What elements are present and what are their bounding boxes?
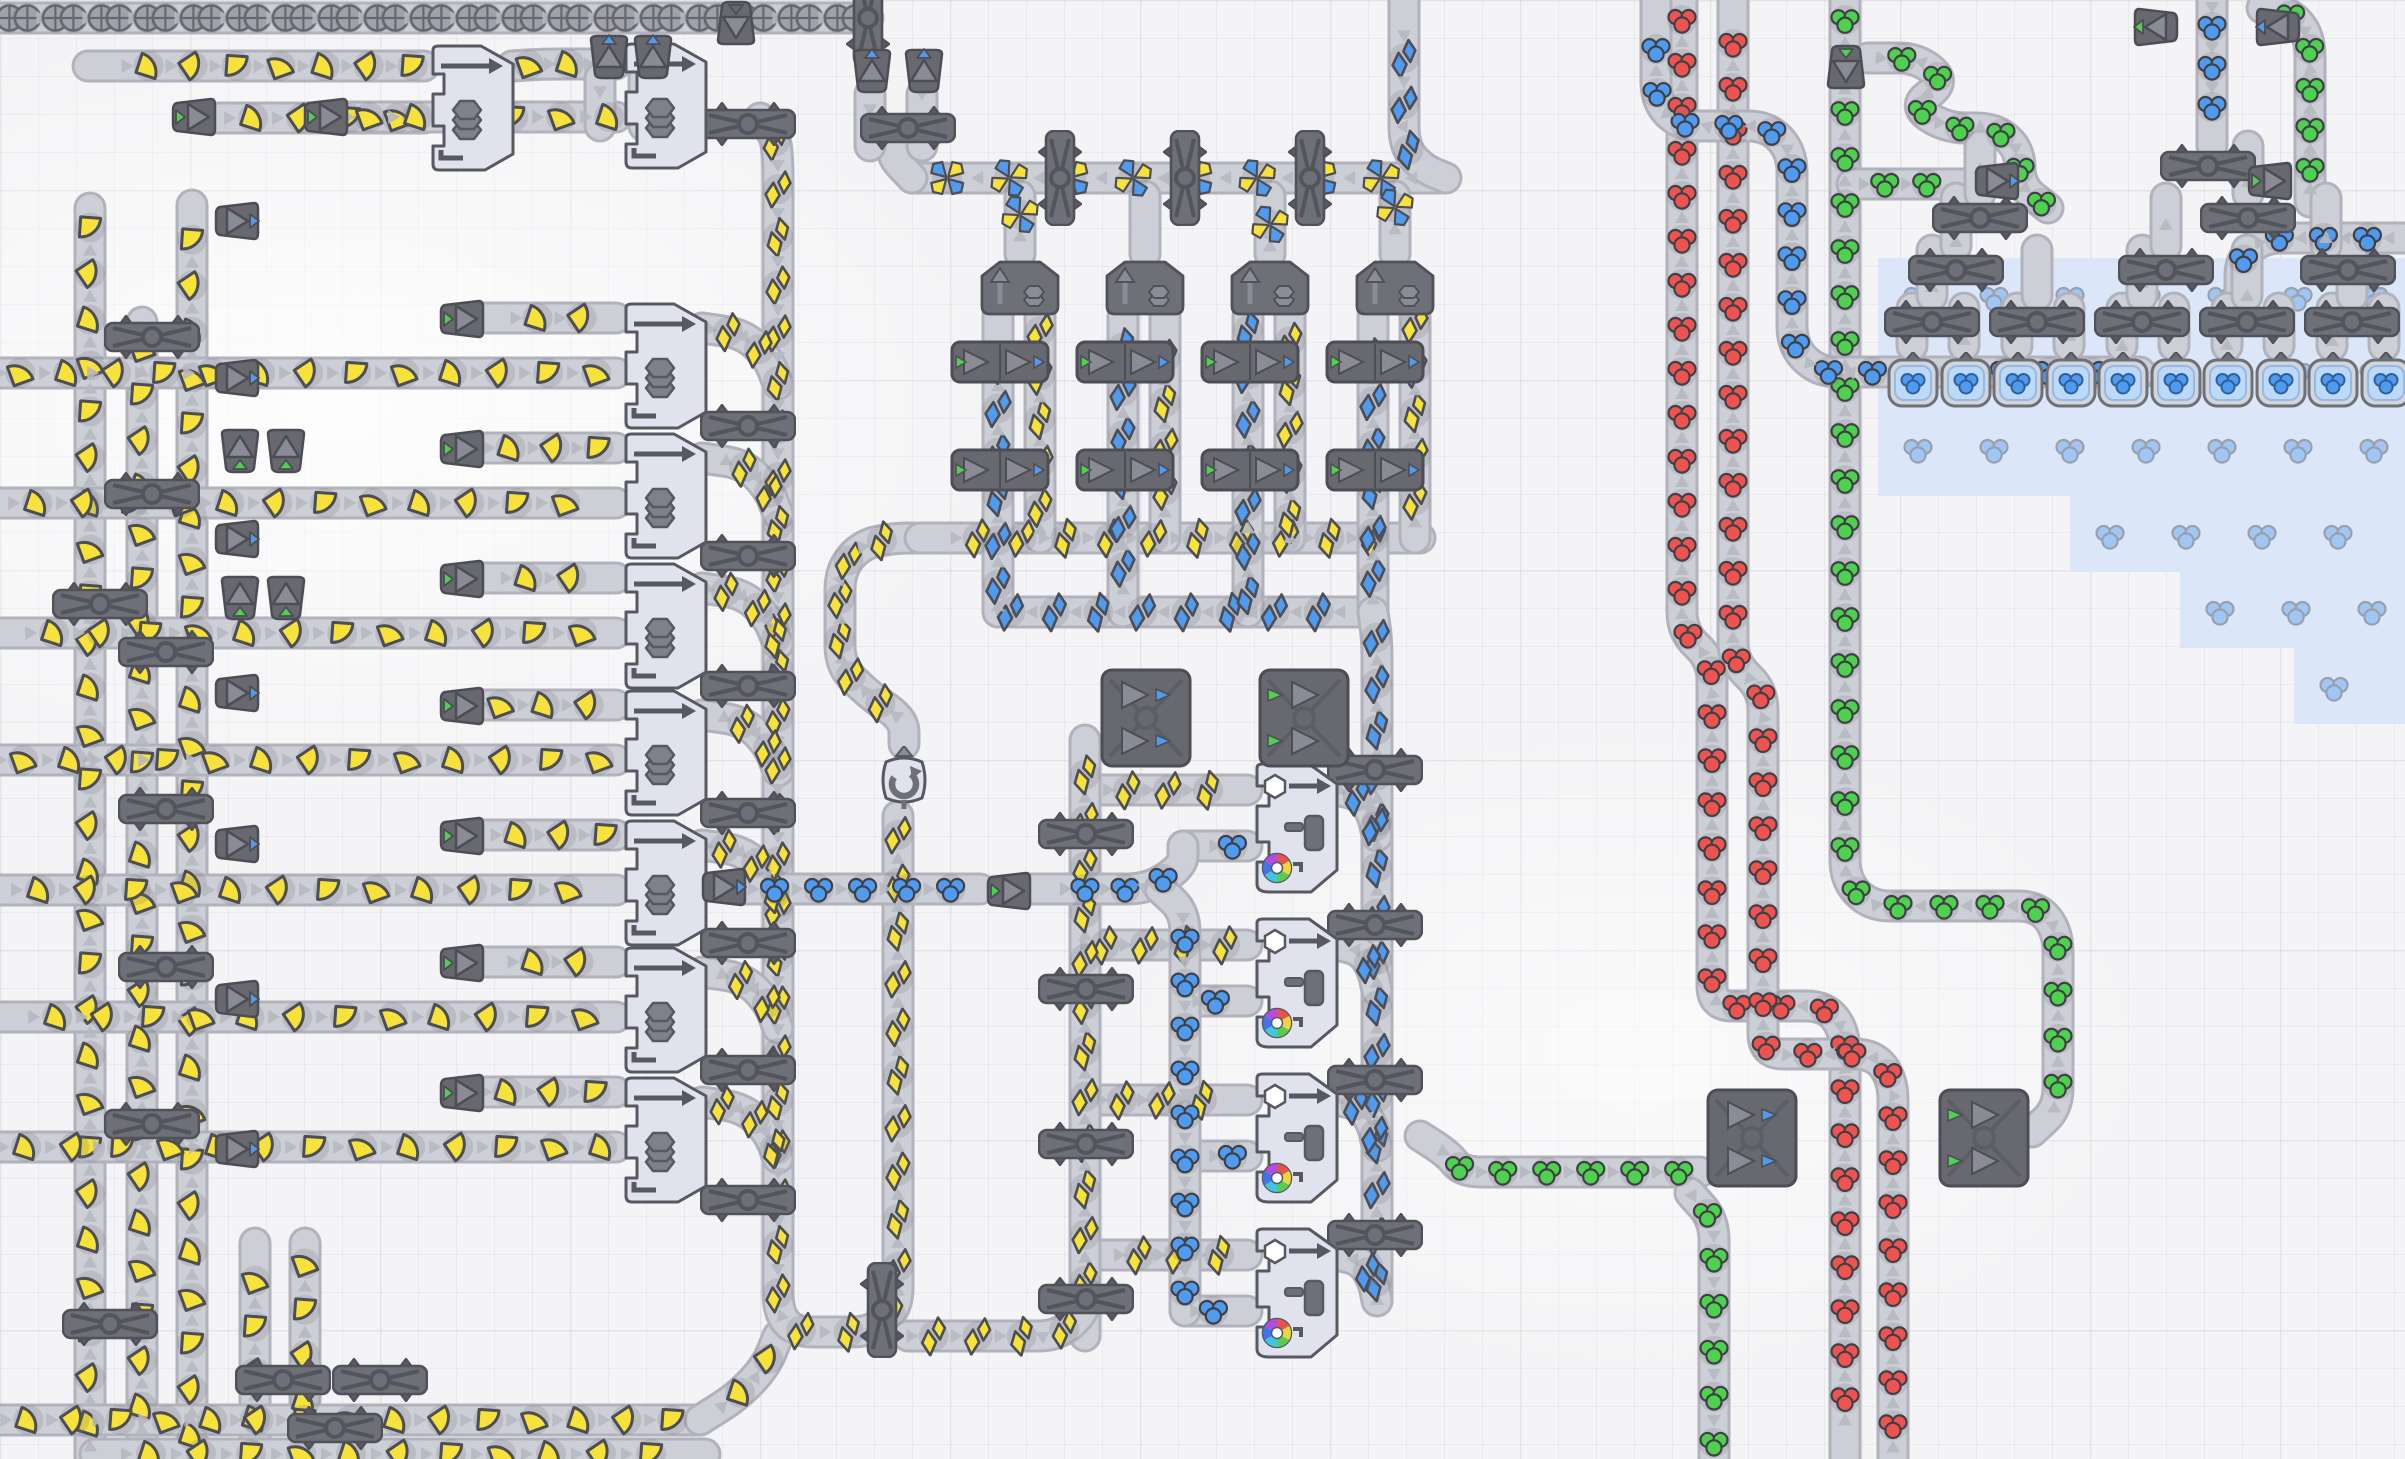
- machine-bal[interactable]: [2305, 301, 2399, 343]
- machine-paint[interactable]: [1257, 764, 1337, 892]
- shape-item-it_gray: [291, 6, 316, 31]
- machine-bal[interactable]: [1039, 1278, 1133, 1320]
- machine-cat[interactable]: [441, 688, 483, 724]
- machine-bal[interactable]: [119, 631, 213, 673]
- machine-bal[interactable]: [1909, 249, 2003, 291]
- machine-stk[interactable]: [626, 691, 706, 815]
- factory-canvas[interactable]: [0, 0, 2405, 1459]
- machine-stku[interactable]: [982, 262, 1058, 314]
- machine-bal[interactable]: [105, 316, 199, 358]
- machine-jump2[interactable]: [1327, 450, 1423, 490]
- machine-cat[interactable]: [441, 301, 483, 337]
- machine-cat[interactable]: [173, 99, 215, 135]
- machine-miner[interactable]: [2257, 352, 2305, 406]
- machine-lau[interactable]: [703, 869, 746, 905]
- machine-bal[interactable]: [2095, 301, 2189, 343]
- machine-lau[interactable]: [2256, 9, 2299, 45]
- machine-stk[interactable]: [626, 948, 706, 1072]
- machine-cat[interactable]: [1828, 46, 1864, 88]
- machine-miner[interactable]: [2152, 352, 2200, 406]
- machine-jv_r[interactable]: [1940, 1090, 2028, 1186]
- machine-bal[interactable]: [701, 103, 795, 145]
- machine-bal[interactable]: [1039, 1123, 1133, 1165]
- shape-item-it_gray: [659, 6, 684, 31]
- machine-lau[interactable]: [216, 521, 259, 557]
- shape-item-it_gray: [15, 6, 40, 31]
- machine-jump2[interactable]: [952, 450, 1048, 490]
- machine-rot[interactable]: [883, 746, 925, 809]
- machine-bal[interactable]: [53, 583, 147, 625]
- shape-item-it_gray: [475, 6, 500, 31]
- machine-lau[interactable]: [591, 35, 627, 78]
- machine-bal[interactable]: [701, 535, 795, 577]
- machine-cat[interactable]: [268, 430, 304, 472]
- machine-bal[interactable]: [861, 107, 955, 149]
- machine-miner[interactable]: [1994, 352, 2042, 406]
- machine-bal[interactable]: [2200, 301, 2294, 343]
- machine-lau[interactable]: [216, 1131, 259, 1167]
- shape-item-it_gray: [199, 6, 224, 31]
- shape-item-it_yq: [640, 1443, 661, 1459]
- machine-bal[interactable]: [861, 1263, 903, 1357]
- machine-cat[interactable]: [718, 2, 754, 44]
- machine-lau[interactable]: [216, 981, 259, 1017]
- machine-bal[interactable]: [701, 1179, 795, 1221]
- machine-paint[interactable]: [1257, 1074, 1337, 1202]
- machine-bal[interactable]: [119, 788, 213, 830]
- machine-jump2[interactable]: [1077, 450, 1173, 490]
- shape-item-it_gray: [797, 6, 822, 31]
- machine-cat[interactable]: [305, 99, 347, 135]
- shape-item-it_gray: [383, 6, 408, 31]
- machine-bal[interactable]: [2301, 249, 2395, 291]
- machine-miner[interactable]: [2047, 352, 2095, 406]
- machine-jv_s[interactable]: [1708, 1090, 1796, 1186]
- machine-bal[interactable]: [1885, 301, 1979, 343]
- machine-stk[interactable]: [626, 564, 706, 688]
- machine-jump2[interactable]: [952, 342, 1048, 382]
- machine-bal[interactable]: [2161, 145, 2255, 187]
- machine-cat[interactable]: [988, 873, 1030, 909]
- machine-bal[interactable]: [1164, 131, 1206, 225]
- machine-cat[interactable]: [2249, 163, 2291, 199]
- machine-miner[interactable]: [1889, 352, 1937, 406]
- shape-item-it_yq: [240, 1443, 261, 1459]
- machine-bal[interactable]: [1039, 813, 1133, 855]
- belt-layer[interactable]: [0, 0, 2405, 1459]
- machine-stku[interactable]: [1232, 262, 1308, 314]
- machine-bal[interactable]: [333, 1359, 427, 1401]
- machine-stk[interactable]: [626, 304, 706, 428]
- machine-cat[interactable]: [268, 577, 304, 619]
- machine-bal[interactable]: [105, 1103, 199, 1145]
- shape-item-it_gray: [429, 6, 454, 31]
- machine-miner[interactable]: [2309, 352, 2357, 406]
- shape-item-it_gray: [613, 6, 638, 31]
- machine-jv_r[interactable]: [1260, 670, 1348, 766]
- machine-jump2[interactable]: [1202, 342, 1298, 382]
- machine-bal[interactable]: [1990, 301, 2084, 343]
- machine-cat[interactable]: [441, 561, 483, 597]
- machine-bal[interactable]: [236, 1359, 330, 1401]
- machine-jump2[interactable]: [1077, 342, 1173, 382]
- machine-bal[interactable]: [63, 1303, 157, 1345]
- machine-bal[interactable]: [701, 922, 795, 964]
- machine-lau[interactable]: [216, 675, 259, 711]
- machine-bal[interactable]: [701, 792, 795, 834]
- machine-bal[interactable]: [105, 473, 199, 515]
- resource-patch-blue: [2294, 648, 2405, 724]
- machine-jump2[interactable]: [1327, 342, 1423, 382]
- machine-bal[interactable]: [1039, 968, 1133, 1010]
- shape-item-it_gray: [751, 6, 776, 31]
- shape-item-it_gray: [245, 6, 270, 31]
- machine-bal[interactable]: [1328, 1059, 1422, 1101]
- machine-jump2[interactable]: [1202, 450, 1298, 490]
- machine-bal[interactable]: [1933, 197, 2027, 239]
- shape-item-it_gray: [153, 6, 178, 31]
- machine-lau[interactable]: [906, 49, 942, 92]
- machine-stk[interactable]: [626, 1078, 706, 1202]
- shape-item-it_gray: [521, 6, 546, 31]
- machine-cat[interactable]: [222, 430, 258, 472]
- machine-miner[interactable]: [1942, 352, 1990, 406]
- machine-bal[interactable]: [701, 405, 795, 447]
- machine-lau[interactable]: [2134, 9, 2177, 45]
- machine-bal[interactable]: [701, 665, 795, 707]
- shape-item-it_gray: [567, 6, 592, 31]
- machine-lau[interactable]: [635, 35, 671, 78]
- machine-paint[interactable]: [1257, 1229, 1337, 1357]
- machine-stku[interactable]: [1357, 262, 1433, 314]
- machine-lau[interactable]: [216, 360, 259, 396]
- shape-item-it_gray: [337, 6, 362, 31]
- shape-item-it_yq: [440, 1443, 461, 1459]
- machine-bal[interactable]: [1289, 131, 1331, 225]
- machine-bal[interactable]: [2119, 249, 2213, 291]
- machine-bal[interactable]: [2201, 197, 2295, 239]
- shape-item-it_gray: [61, 6, 86, 31]
- machine-miner[interactable]: [2204, 352, 2252, 406]
- machine-bal[interactable]: [288, 1407, 382, 1449]
- shape-item-it_gray: [107, 6, 132, 31]
- machine-lau[interactable]: [854, 49, 890, 92]
- machine-jv_s[interactable]: [1102, 670, 1190, 766]
- machine-lau[interactable]: [1976, 163, 2019, 199]
- machine-cat[interactable]: [222, 577, 258, 619]
- machine-paint[interactable]: [1257, 919, 1337, 1047]
- machine-stku[interactable]: [1107, 262, 1183, 314]
- machine-miner[interactable]: [2099, 352, 2147, 406]
- machine-stk[interactable]: [433, 46, 513, 170]
- machine-stk[interactable]: [626, 821, 706, 945]
- machine-bal[interactable]: [1328, 1214, 1422, 1256]
- machine-bal[interactable]: [119, 946, 213, 988]
- machine-bal[interactable]: [1039, 131, 1081, 225]
- machine-bal[interactable]: [1328, 904, 1422, 946]
- machine-miner[interactable]: [2362, 352, 2405, 406]
- machine-bal[interactable]: [701, 1049, 795, 1091]
- game-viewport[interactable]: [0, 0, 2405, 1459]
- machine-lau[interactable]: [216, 203, 259, 239]
- machine-cat[interactable]: [441, 945, 483, 981]
- machine-cat[interactable]: [441, 431, 483, 467]
- machine-cat[interactable]: [441, 1075, 483, 1111]
- machine-cat[interactable]: [441, 818, 483, 854]
- machine-stk[interactable]: [626, 434, 706, 558]
- machine-lau[interactable]: [216, 826, 259, 862]
